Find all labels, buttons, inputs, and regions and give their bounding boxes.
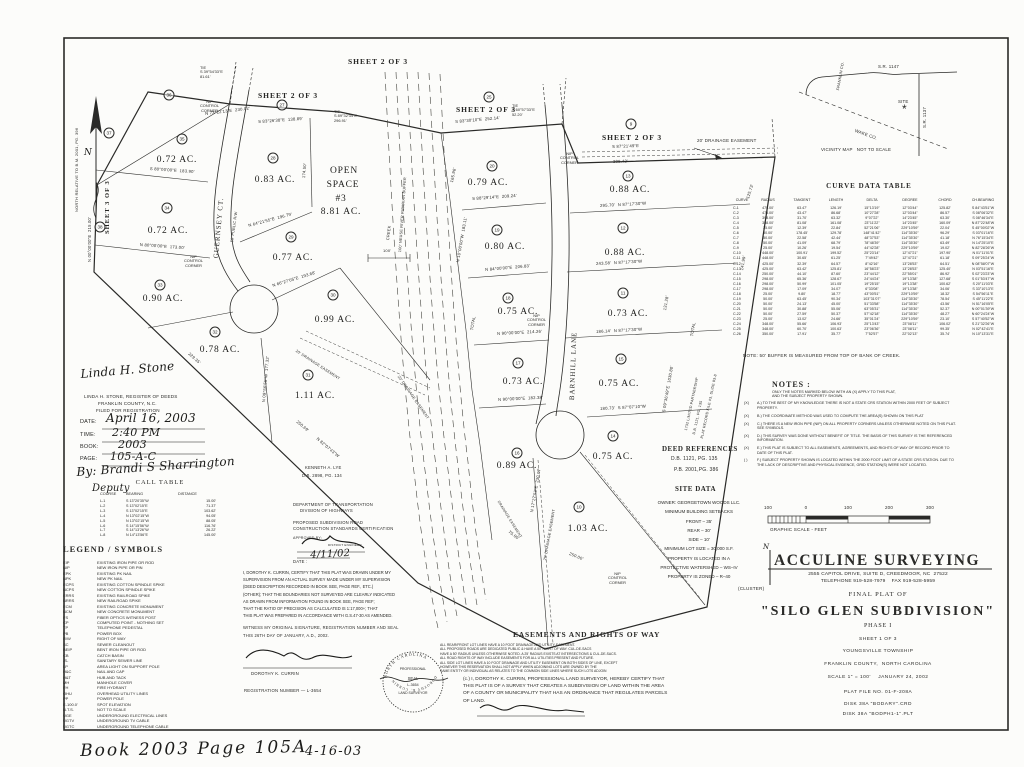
dot-date-label: DATE : [293, 560, 307, 565]
subdivision-name: "SILO GLEN SUBDIVISION" [761, 604, 995, 620]
register-of-deeds: LINDA H. STONE, REGISTER OF DEEDS [84, 394, 178, 399]
lot-number: 32 [210, 327, 221, 338]
buffer-dimension [368, 254, 410, 262]
final-plat-of: FINAL PLAT OF [849, 591, 908, 598]
site-data-line: FRONT – 35' [638, 517, 760, 526]
easements-title: EASEMENTS AND RIGHTS OF WAY [513, 631, 660, 640]
deed-references-title: DEED REFERENCES [662, 445, 738, 453]
easements-line: SAME ENTITY OR INDIVIDUAL AS RELATES TO … [440, 669, 708, 673]
scale-label: 0 [805, 505, 808, 510]
date-label: DATE: [80, 419, 97, 425]
vicinity-map-lines [799, 72, 957, 156]
surveyor-cert-line: (OTHER); THAT THE BOUNDARIES NOT SURVEYE… [243, 591, 423, 598]
scale-date-label: SCALE 1" = 100' JANUARY 24, 2002 [828, 675, 929, 681]
subdivision-signature [480, 705, 584, 712]
witness-line: THIS 26TH DAY OF JANUARY, A.D., 2002. [243, 634, 329, 639]
handwritten-date: 4-16-03 [305, 745, 362, 760]
lot-number: 25 [484, 92, 495, 103]
plat-sheet: NORTH CAROLINA DOROTHY K. CURRIN PROFESS… [0, 0, 1024, 767]
lot-number: 11 [618, 288, 629, 299]
deed-reference: D.B. 1121, PG. 135 [671, 457, 718, 463]
site-data-line: OWNER: GEORGETOWN WOODS LLC. [638, 498, 760, 507]
curve-data-table: CURVE DATA TABLE CURVERADIUSTANGENTLENGT… [733, 182, 1005, 337]
lot-number: 33 [155, 280, 166, 291]
lot-number: 35 [177, 134, 188, 145]
curve-table-body: C-1475.00'63.47' 126.19'15°13'19"12°03'4… [733, 206, 1005, 337]
site-data-title: SITE DATA [675, 485, 716, 493]
buffer-dim-label: 100' [383, 249, 391, 254]
tie-label: TIE S 89°32'34"E 296.91' [334, 110, 357, 123]
notes-intro: ONLY THE NOTES MARKED BELOW WITH AN (X) … [772, 390, 958, 399]
sheet-2-label: SHEET 2 OF 3 [456, 105, 516, 114]
lot-number: 16 [512, 448, 523, 459]
dot-division: DIVISION OF HIGHWAYS [300, 509, 353, 514]
scale-label: 300 [926, 505, 934, 510]
bearing-label: 308.42' [613, 159, 628, 164]
creek-buffer-lines [385, 72, 486, 628]
vicinity-site-star: * [902, 103, 907, 117]
disk-reference: DISK 38A "BODARY".CRD [844, 702, 912, 708]
notes-items: (X)A.) TO THE BEST OF MY KNOWLEDGE THERE… [744, 401, 958, 467]
call-table-row: L-8N 14°13'56"E145.00' [100, 533, 220, 538]
site-data-line: PROPERTY IS ZONED – R–40 [638, 572, 760, 581]
lot-area: 0.79 AC. [468, 178, 508, 188]
plat-file-number: PLAT FILE NO. 01-F-208A [844, 690, 912, 696]
graphic-scale-bar [768, 516, 930, 523]
legend-items: EIPEXISTING IRON PIPE OR ROD NIPNEW IRON… [63, 560, 239, 729]
site-data-line: MINIMUM LOT SIZE = 30,000 S.F. [638, 544, 760, 553]
call-table-title: CALL TABLE [100, 479, 220, 486]
witness-line: WITNESS MY ORIGINAL SIGNATURE, REGISTRAT… [243, 626, 399, 631]
call-table-body: L-1S 13°20'35"W15.00' L-2S 13°02'15"E71.… [100, 499, 220, 538]
control-corner-label: NIP CONTROL CORNER [608, 572, 627, 585]
guernsey-cul-de-sac [230, 285, 278, 333]
surveyor-cert-line: THIS PLAT WAS PREPARED IN ACCORDANCE WIT… [243, 612, 423, 619]
seal-arc-top: NORTH CAROLINA [382, 652, 428, 679]
dot-engineer-label: DISTRICT ENGINEER [328, 544, 362, 547]
lot-area: 0.78 AC. [200, 345, 240, 355]
lot-number: 10 [574, 502, 585, 513]
tie-label: TIE S 39°54'33"E 81.61' [200, 66, 223, 79]
lot-number: 38 [95, 222, 106, 233]
bearing-label: N 00°00'00"E 215.00' [88, 217, 93, 262]
time-label: TIME: [80, 432, 96, 438]
lot-number: 29 [286, 232, 297, 243]
lot-number: 37 [104, 128, 115, 139]
site-data-line: PROTECTIVE WATERSHED – WS–IV [638, 563, 760, 572]
lot-number: 14 [608, 431, 619, 442]
surveyor-signature [246, 650, 352, 659]
easements-lines: ALL REAR/FRONT LOT LINES HAVE A 10 FOOT … [440, 643, 708, 674]
deed-reference: P.B. 2001,PG. 386 [674, 468, 718, 474]
firm-phone: TELEPHONE 919-528-7979 FAX 919-528-5959 [821, 579, 935, 585]
lot-area: 0.75 AC. [498, 307, 538, 317]
site-data-line: PROPERTY IS LOCATED IN A [638, 554, 760, 563]
adjoiner-name: KENNETH A. LYE [305, 466, 341, 471]
firm-name: ACCULINE SURVEYING [774, 552, 980, 570]
open-space-label: OPEN [330, 166, 358, 176]
open-space-area: 8.81 AC. [321, 207, 361, 217]
svg-text:NORTH CAROLINA: NORTH CAROLINA [382, 652, 428, 679]
curve-table-title: CURVE DATA TABLE [733, 182, 1005, 190]
subdivision-cert: (c.) I, DOROTHY K. CURRIN, PROFESSIONAL … [463, 676, 713, 705]
subdivision-cert-line: OF A COUNTY OR MUNICIPALITY THAT HAS AN … [463, 690, 713, 697]
handwritten-book-page: Book 2003 Page 105A [80, 738, 308, 762]
site-data-line: REAR – 30' [638, 526, 760, 535]
call-table: CALL TABLE COURSEBEARINGDISTANCE L-1S 13… [100, 479, 220, 538]
seal-land-surveyor: LAND SURVEYOR [399, 691, 429, 695]
site-data-cluster: (CLUSTER) [738, 586, 764, 591]
date-value: April 16, 2003 [106, 412, 196, 426]
lot-area: 0.99 AC. [315, 315, 355, 325]
note-item: (X)E.) THIS PLAT IS SUBJECT TO ALL EASEM… [744, 446, 958, 455]
dot-date-value: 4/11/02 [310, 548, 351, 562]
subdivision-cert-line: OF LAND. [463, 698, 713, 705]
adjoiner-deed: D.B. 2898, PG. 134 [302, 474, 342, 479]
registration-number: REGISTRATION NUMBER — L-3654 [244, 689, 321, 694]
book-label: BOOK: [80, 444, 98, 450]
surveyor-seal: NORTH CAROLINA DOROTHY K. CURRIN PROFESS… [380, 652, 448, 712]
control-corner-label: NIP CONTROL CORNER [560, 152, 579, 165]
note-item: (X)A.) TO THE BEST OF MY KNOWLEDGE THERE… [744, 401, 958, 410]
lot-number: 31 [303, 370, 314, 381]
lot-number: 17 [513, 358, 524, 369]
vicinity-road-sr1147: S.R. 1147 [878, 64, 899, 69]
lot-area: 1.11 AC. [295, 391, 335, 401]
note-item: (X)B.) THE COORDINATE METHOD WAS USED TO… [744, 414, 958, 418]
open-space-label: #3 [335, 194, 346, 204]
notes-title: NOTES : [772, 380, 958, 390]
north-reference-note: NORTH RELATIVE TO B.M. 2001, PG. 396 [75, 128, 80, 212]
scale-label: 100 [844, 505, 852, 510]
seal-professional: PROFESSIONAL [400, 667, 426, 671]
firm-address: 2555 CAPITOL DRIVE, SUITE D, CREEDMOOR, … [808, 572, 948, 578]
site-data-line: SIDE – 10' [638, 535, 760, 544]
lot-number: 36 [164, 90, 175, 101]
legend-block: LEGEND / SYMBOLS EIPEXISTING IRON PIPE O… [63, 544, 239, 729]
scale-label: 200 [885, 505, 893, 510]
lot-area: 1.03 AC. [568, 524, 608, 534]
tie-label: TIE S 60°57'33"E 52.20' [512, 104, 535, 117]
lot-number: 13 [623, 171, 634, 182]
surveyor-cert-line: (DEED DESCRIPTION RECORDED IN BOOK SEE, … [243, 583, 423, 590]
lot-number: 15 [616, 354, 627, 365]
page-label: PAGE: [80, 456, 97, 462]
note-item: (X)C.) THERE IS A NEW IRON PIPE (NIP) ON… [744, 422, 958, 431]
lot-number: 30 [328, 290, 339, 301]
lot-number: 19 [492, 225, 503, 236]
note-item: (X)D.) THIS SURVEY WAS DONE WITHOUT BENE… [744, 434, 958, 443]
vicinity-road-sr1137: S.R. 1137 [922, 107, 927, 128]
surveyor-cert-line: I, DOROTHY K. CURRIN, CERTIFY THAT THIS … [243, 569, 423, 576]
lot-area: 0.75 AC. [599, 379, 639, 389]
lot-area: 0.89 AC. [497, 461, 537, 471]
subdivision-cert-line: THIS PLAT IS OF A SURVEY THAT CREATES A … [463, 683, 713, 690]
dot-standards: CONSTRUCTION STANDARDS CERTIFICATION [293, 527, 394, 532]
legend-item: UGTCUNDERGROUND TELEPHONE CABLE [63, 724, 239, 729]
lot-area: 0.72 AC. [157, 155, 197, 165]
lot-number: 20 [487, 161, 498, 172]
lot-number: 9 [626, 119, 637, 130]
lot-number: 34 [162, 203, 173, 214]
lot-area: 0.83 AC. [255, 175, 295, 185]
lot-area: 0.72 AC. [148, 226, 188, 236]
lot-number: 27 [277, 100, 288, 111]
surveyor-name: DOROTHY K. CURRIN [251, 672, 299, 677]
surveyor-cert-line: SUPERVISION FROM AN ACTUAL SURVEY MADE U… [243, 576, 423, 583]
curve-table-row: C-26350.00'17.91' 35.77'7°52'57"22°02'13… [733, 332, 1005, 337]
disk-reference: DISK 38A "BODPH1-1".PLT [843, 712, 914, 718]
surveyor-cert-line: THAT THE RATIO OF PRECISION AS CALCULATE… [243, 605, 423, 612]
sheet-2-label: SHEET 2 OF 3 [348, 57, 408, 66]
site-data-lines: OWNER: GEORGETOWN WOODS LLC.MINIMUM BUIL… [638, 498, 760, 582]
lot-area: 0.88 AC. [605, 248, 645, 258]
lot-area: 0.73 AC. [608, 309, 648, 319]
legend-title: LEGEND / SYMBOLS [63, 544, 239, 554]
surveyor-cert: I, DOROTHY K. CURRIN, CERTIFY THAT THIS … [243, 569, 423, 619]
sheet-2-label: SHEET 2 OF 3 [258, 91, 318, 100]
lot-area: 0.73 AC. [503, 377, 543, 387]
scale-caption: GRAPHIC SCALE - FEET [770, 527, 827, 532]
curve-table-headers: CURVERADIUSTANGENTLENGTHDELTADEGREECHORD… [733, 198, 1005, 202]
north-arrow-n: N [84, 148, 92, 158]
sheet-1-label: SHEET 1 OF 3 [859, 637, 897, 643]
call-table-headers: COURSEBEARINGDISTANCE [100, 492, 220, 496]
vicinity-caption: VICINITY MAP NOT TO SCALE [821, 147, 891, 152]
title-block-n: N [763, 543, 769, 551]
drainage-easement-label: 20' DRAINAGE EASEMENT [697, 138, 756, 143]
lot-number: 28 [268, 153, 279, 164]
note-item: ( )F.) SUBJECT PROPERTY SHOWN IS LOCATED… [744, 458, 958, 467]
site-data-line: MINIMUM BUILDING SETBACKS [638, 507, 760, 516]
lot-number: 12 [618, 223, 629, 234]
lot-area: 0.77 AC. [273, 253, 313, 263]
scale-label: 100 [764, 505, 772, 510]
dot-approved-label: APPROVED BY: [293, 536, 322, 540]
lot-area: 0.88 AC. [610, 185, 650, 195]
subdivision-cert-line: (c.) I, DOROTHY K. CURRIN, PROFESSIONAL … [463, 676, 713, 683]
notes-block: NOTES : ONLY THE NOTES MARKED BELOW WITH… [744, 380, 958, 471]
seal-number: L-3654 [407, 683, 418, 687]
lot-area: 0.75 AC. [593, 452, 633, 462]
open-space-label: SPACE [327, 180, 360, 190]
sheet-2-label: SHEET 2 OF 3 [602, 133, 662, 142]
lot-area: 0.90 AC. [143, 294, 183, 304]
register-county: FRANKLIN COUNTY, N.C. [98, 401, 157, 406]
county-label: FRANKLIN COUNTY, NORTH CAROLINA [824, 662, 932, 668]
barnhill-cul-de-sac [536, 411, 584, 459]
buffer-note: NOTE: 50' BUFFER IS MEASURED FROM TOP OF… [743, 353, 901, 358]
control-corner-label: NIP CONTROL CORNER [184, 255, 203, 268]
lot-area: 0.80 AC. [485, 242, 525, 252]
phase-label: PHASE I [864, 623, 892, 630]
bearing-label: S 87°21'49"E [612, 144, 639, 150]
lot-number: 18 [503, 293, 514, 304]
township-label: YOUNGSVILLE TOWNSHIP [843, 649, 914, 655]
surveyor-cert-line: AS DRAWN FROM INFORMATION FOUND IN BOOK … [243, 598, 423, 605]
